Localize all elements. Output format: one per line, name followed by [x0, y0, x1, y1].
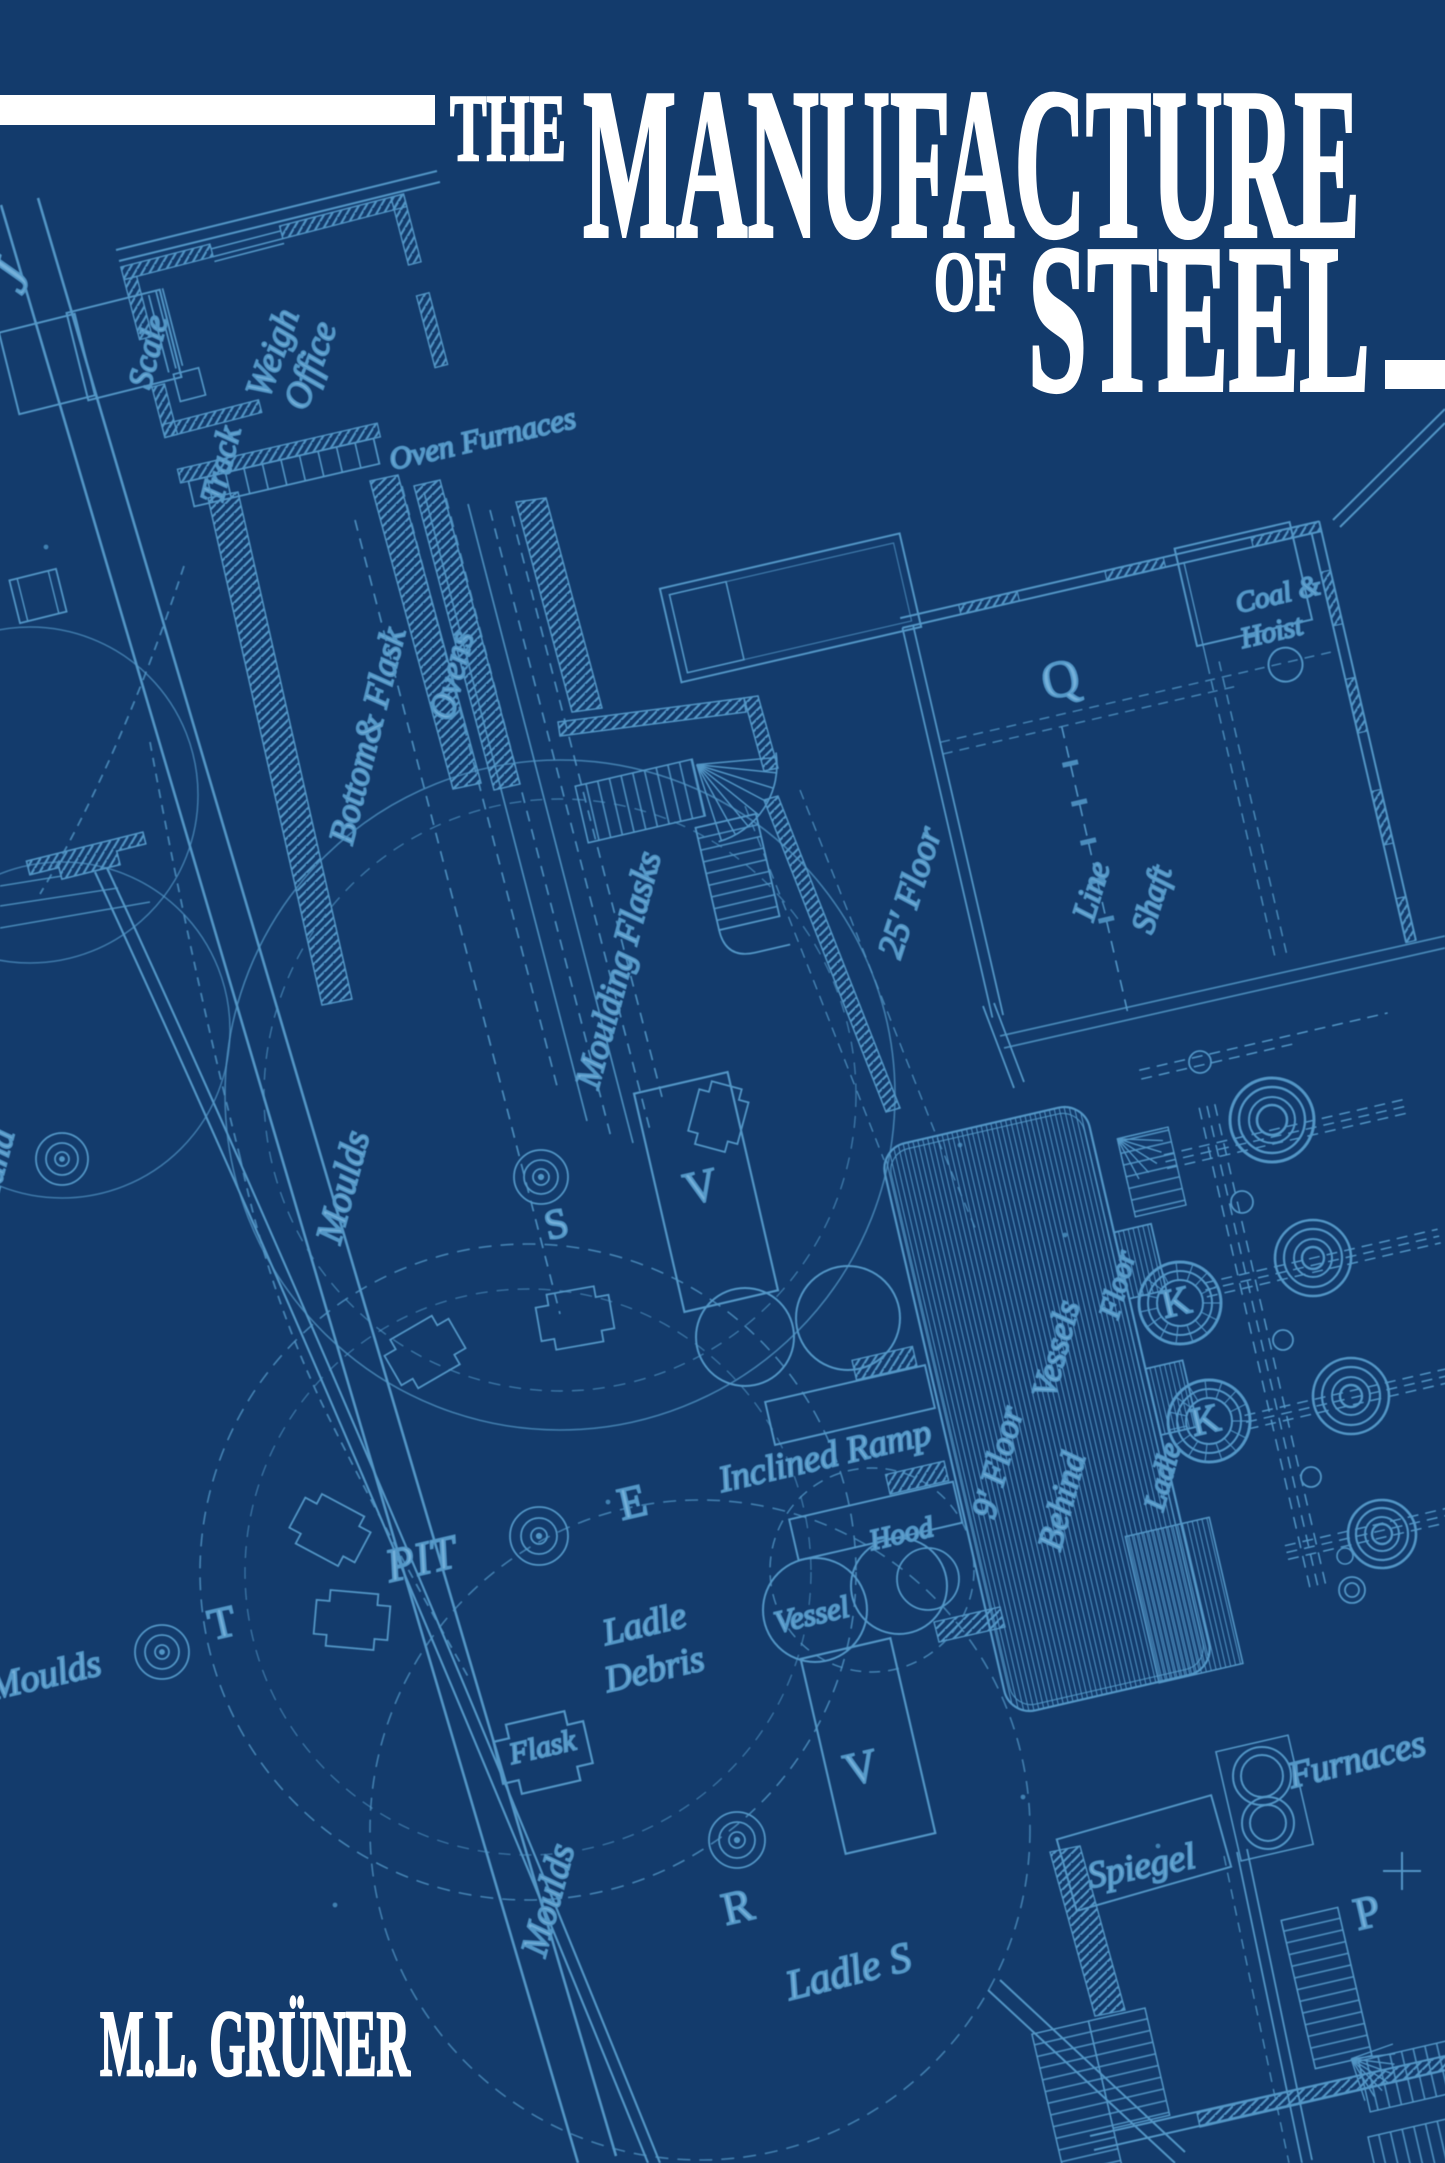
- svg-text:OF: OF: [934, 235, 1007, 329]
- svg-text:STEEL: STEEL: [1028, 201, 1370, 436]
- svg-text:M.L. GRÜNER: M.L. GRÜNER: [100, 1992, 411, 2096]
- svg-text:THE: THE: [450, 75, 566, 181]
